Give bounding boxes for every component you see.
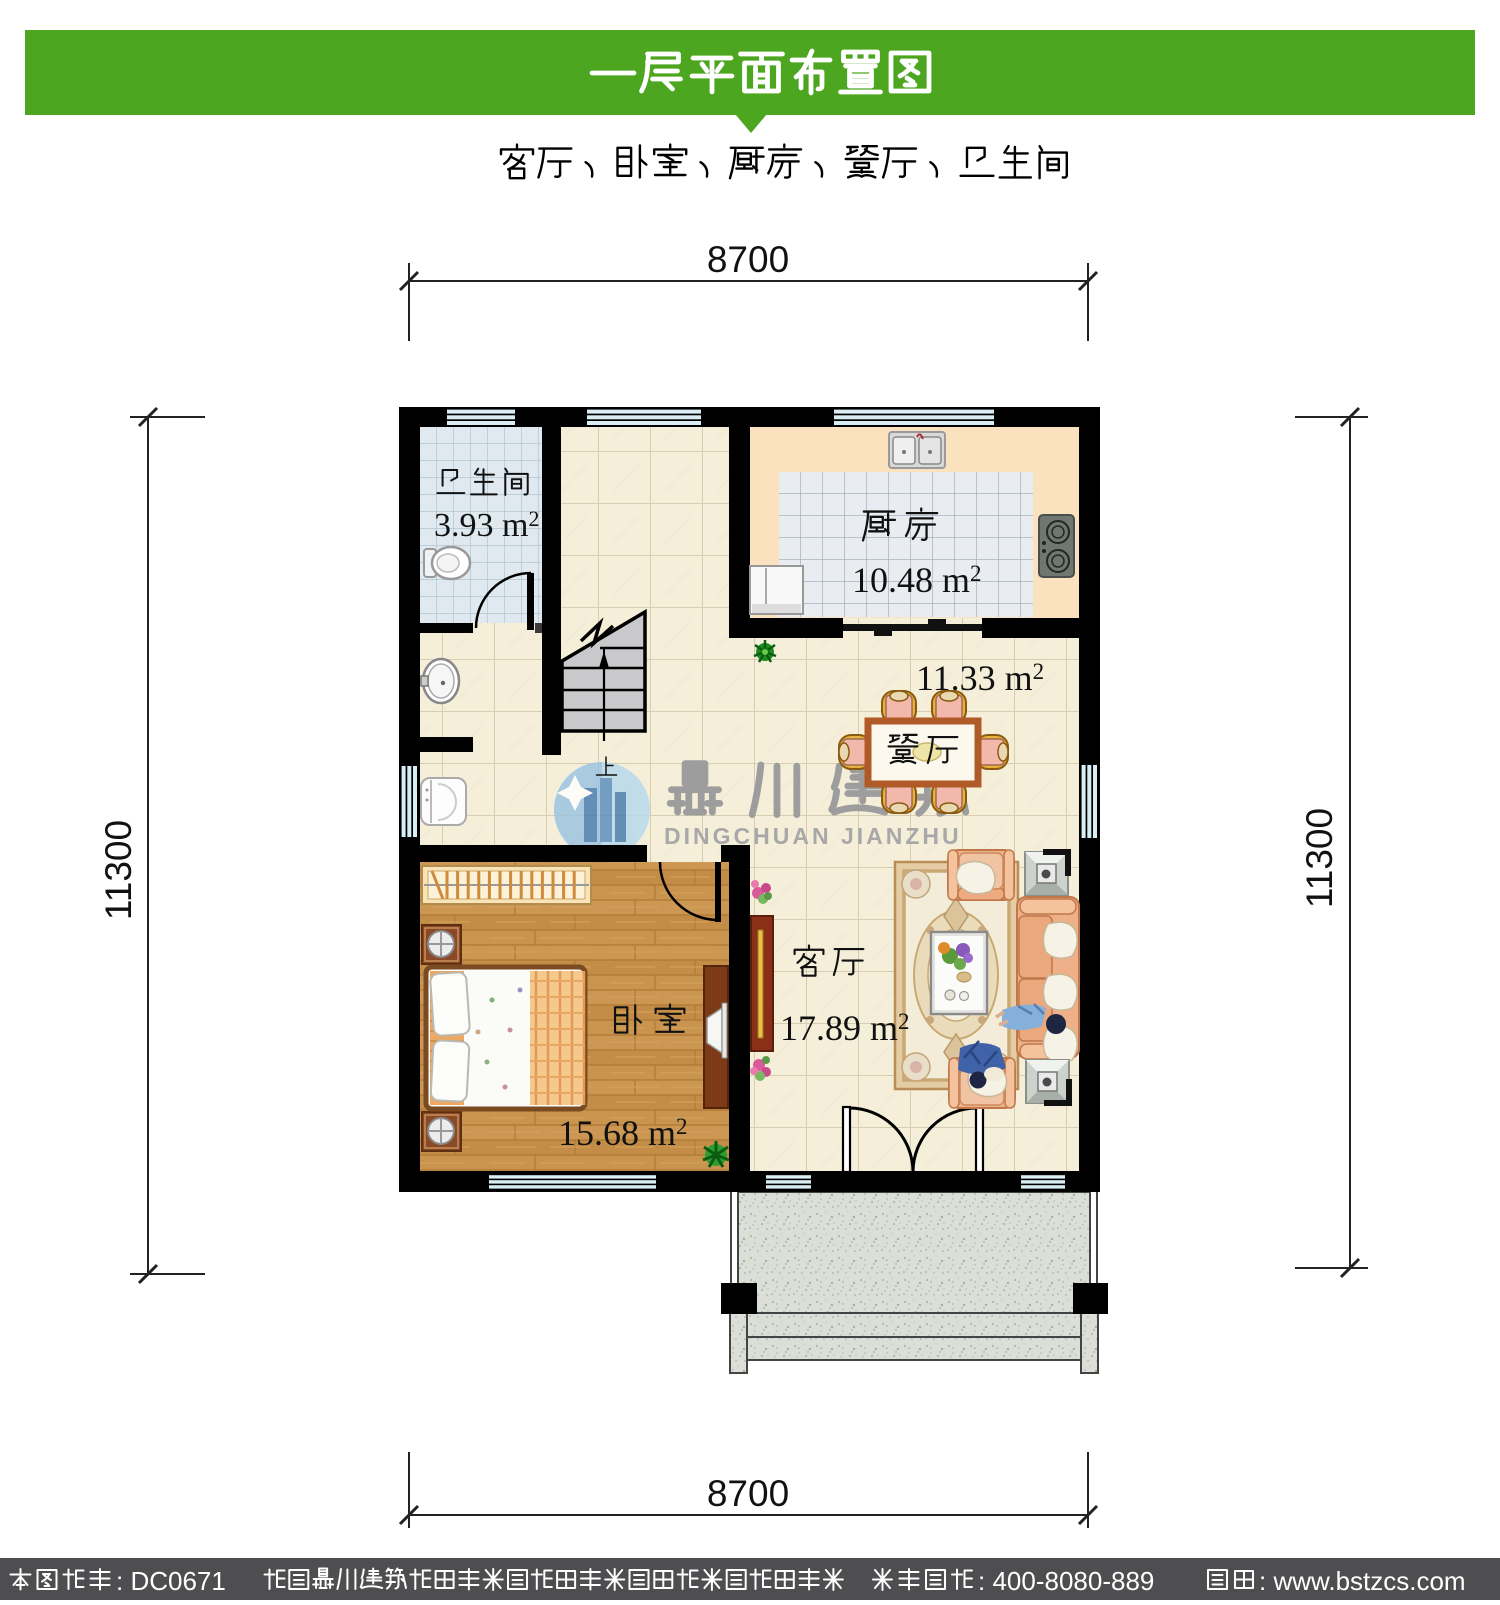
svg-text:11300: 11300 — [1299, 808, 1340, 908]
svg-text:8700: 8700 — [707, 1473, 789, 1514]
svg-text:8700: 8700 — [707, 239, 789, 280]
svg-text:3.93 m2: 3.93 m2 — [434, 506, 539, 544]
svg-text:11300: 11300 — [98, 820, 139, 920]
svg-text:11.33 m2: 11.33 m2 — [916, 658, 1044, 698]
svg-text:: www.bstzcs.com: : www.bstzcs.com — [1259, 1566, 1466, 1596]
svg-text:10.48 m2: 10.48 m2 — [852, 560, 982, 600]
svg-text:15.68 m2: 15.68 m2 — [558, 1113, 688, 1153]
svg-text:: DC0671: : DC0671 — [116, 1566, 226, 1596]
svg-text:DINGCHUAN JIANZHU: DINGCHUAN JIANZHU — [664, 823, 962, 849]
svg-text:17.89 m2: 17.89 m2 — [780, 1008, 910, 1048]
svg-text:: 400-8080-889: : 400-8080-889 — [978, 1566, 1154, 1596]
